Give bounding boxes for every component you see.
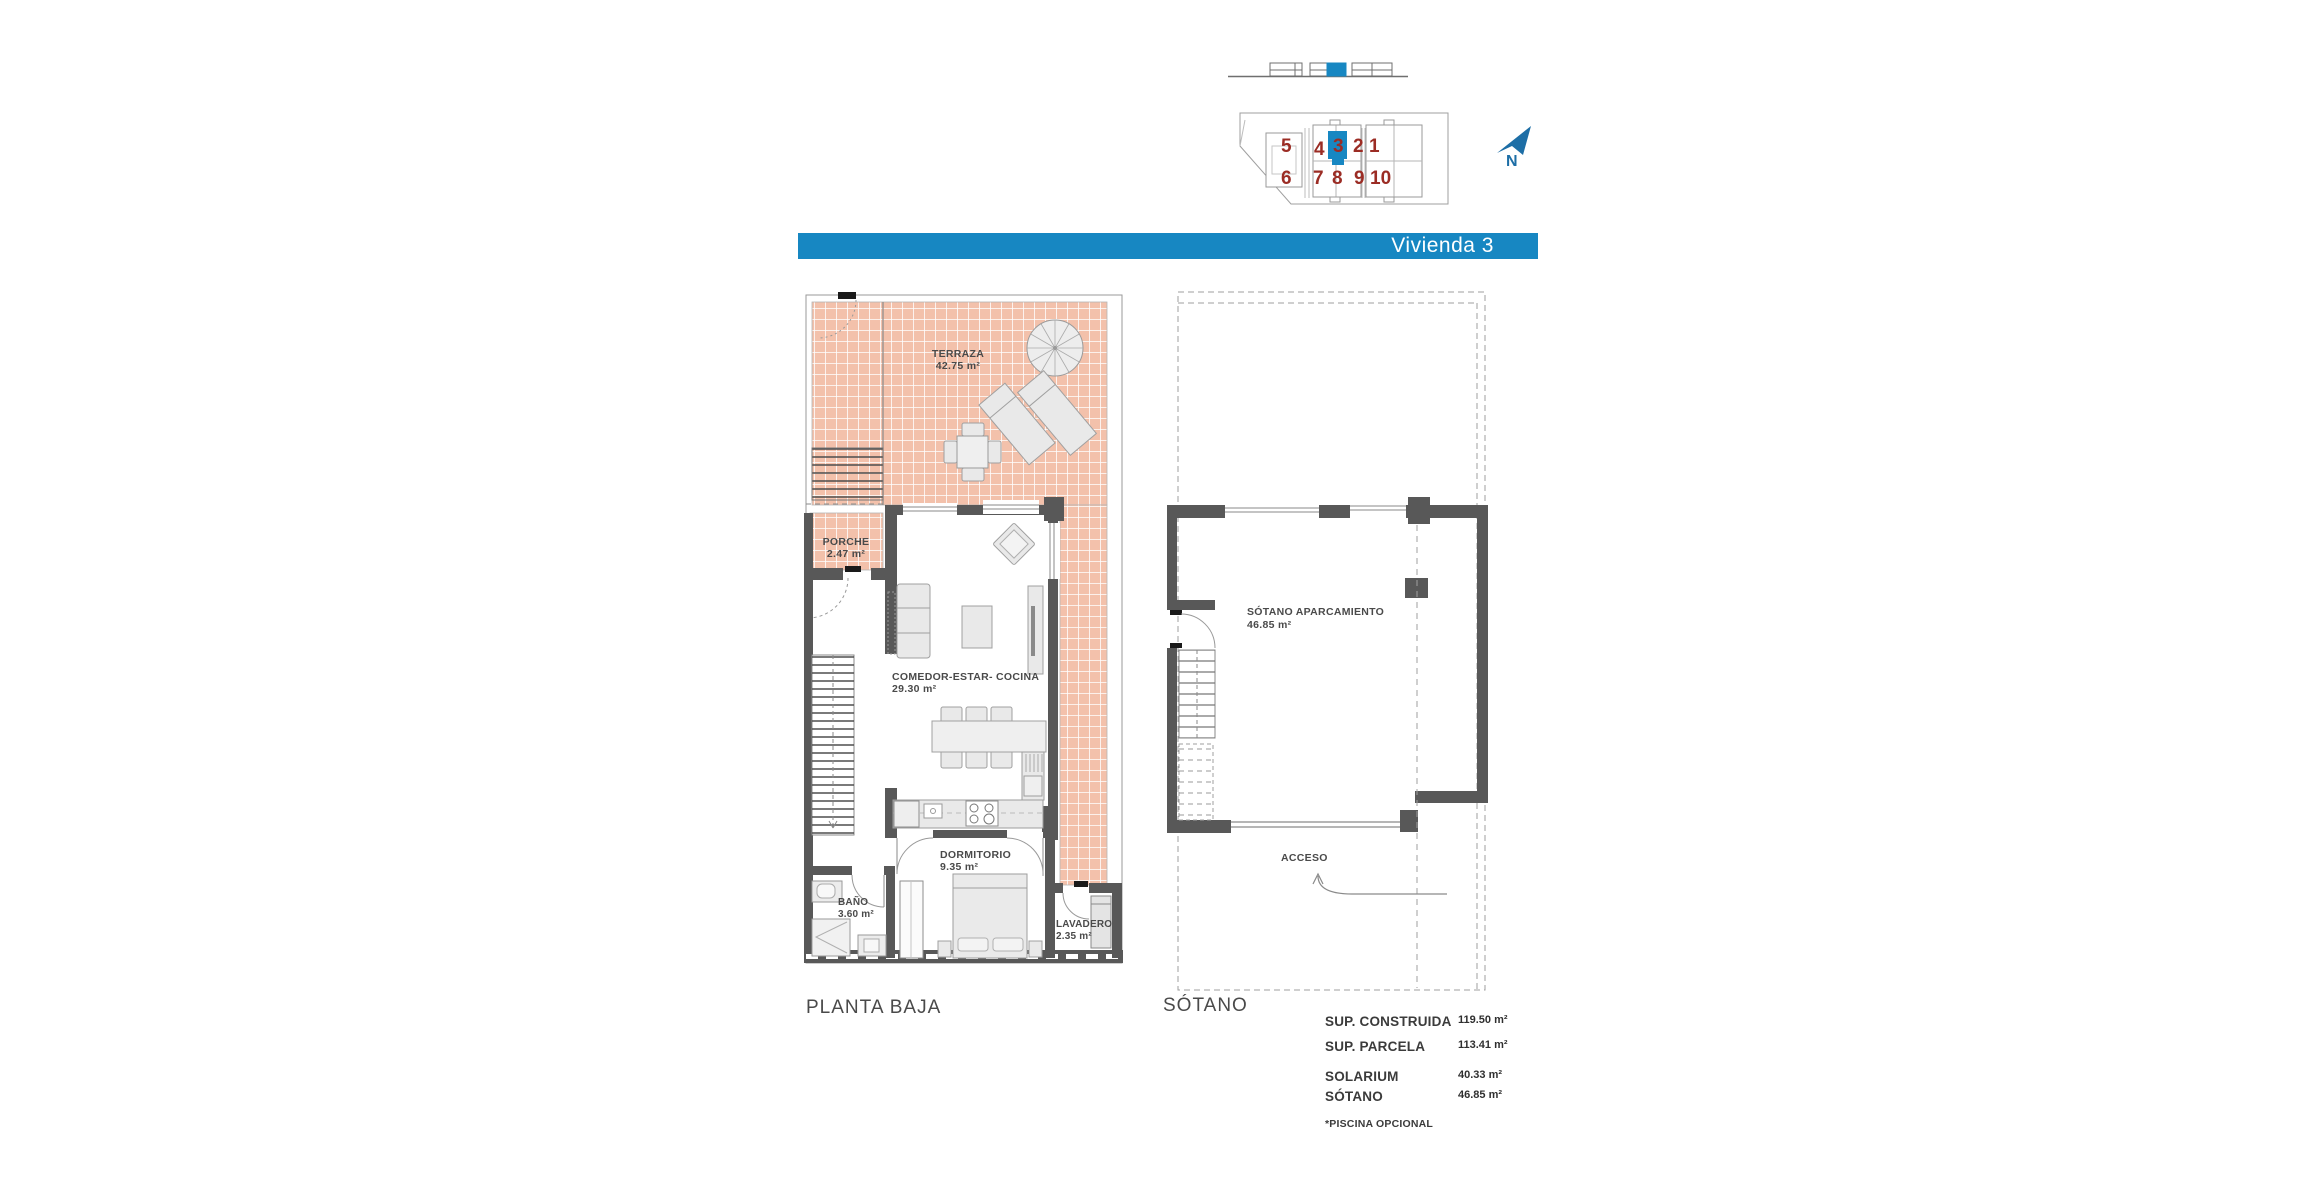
- summary-label: SÓTANO: [1325, 1089, 1383, 1104]
- site-number: 3: [1333, 136, 1344, 157]
- summary-value: 46.85 m²: [1458, 1089, 1502, 1101]
- room-area-salon: 29.30 m²: [892, 683, 937, 695]
- kitchen-sink: [924, 804, 942, 818]
- site-number: 4: [1314, 139, 1325, 160]
- summary-label: SUP. PARCELA: [1325, 1039, 1425, 1054]
- fridge: [894, 801, 919, 827]
- pillow: [958, 938, 988, 951]
- summary-value: 40.33 m²: [1458, 1069, 1502, 1081]
- site-number: 9: [1354, 168, 1365, 189]
- summary-row: SUP. CONSTRUIDA 119.50 m²: [1325, 1014, 1555, 1032]
- site-number: 5: [1281, 136, 1292, 157]
- summary-value: 119.50 m²: [1458, 1014, 1508, 1026]
- nightstand: [1029, 941, 1042, 957]
- room-area-dormitorio: 9.35 m²: [940, 861, 978, 873]
- entrance-gate: [838, 292, 856, 299]
- site-number: 7: [1313, 168, 1324, 189]
- site-number: 8: [1332, 168, 1343, 189]
- nightstand: [938, 941, 951, 957]
- tv: [1031, 606, 1035, 656]
- room-area-lavadero: 2.35 m²: [1056, 931, 1092, 942]
- summary-row: SUP. PARCELA 113.41 m²: [1325, 1039, 1555, 1057]
- site-number: 6: [1281, 168, 1292, 189]
- basement-plan: SÓTANO APARCAMIENTO 46.85 m² ACCESO: [1167, 292, 1488, 990]
- summary-label: SOLARIUM: [1325, 1069, 1399, 1084]
- exterior-stair: [806, 448, 885, 504]
- north-arrow-icon: N: [1497, 126, 1531, 170]
- access-arrow: [1313, 874, 1447, 894]
- room-area-bano: 3.60 m²: [838, 909, 874, 920]
- room-label-dormitorio: DORMITORIO: [940, 849, 1011, 861]
- room-area-porche: 2.47 m²: [827, 548, 865, 560]
- site-number: 10: [1370, 168, 1391, 189]
- highlighted-unit-elevation: [1327, 63, 1346, 76]
- vivienda-banner-label: Vivienda 3: [1391, 234, 1494, 258]
- coffee-table: [962, 606, 992, 648]
- room-label-sotano: SÓTANO APARCAMIENTO: [1247, 605, 1384, 618]
- access-label: ACCESO: [1281, 852, 1328, 864]
- pillow: [993, 938, 1023, 951]
- summary-row: SÓTANO 46.85 m²: [1325, 1089, 1555, 1107]
- spiral-stair: [1027, 320, 1083, 376]
- interior-stair: [812, 655, 854, 835]
- room-label-bano: BAÑO: [838, 895, 868, 908]
- room-area-sotano: 46.85 m²: [1247, 619, 1292, 631]
- basement-stair: [1179, 650, 1215, 820]
- vivienda-banner: Vivienda 3: [798, 233, 1538, 259]
- site-elevation-strip: [1228, 63, 1408, 77]
- summary-row: SOLARIUM 40.33 m²: [1325, 1069, 1555, 1087]
- plan-drawing: 5 4 3 2 1 6 7 8 9 10 N: [0, 0, 2304, 1185]
- bedroom-furniture: [900, 874, 1042, 958]
- ground-floor-plan: TERRAZA 42.75 m² PORCHE 2.47 m² COMEDOR-…: [804, 292, 1123, 963]
- site-number: 1: [1369, 136, 1380, 157]
- room-label-terraza: TERRAZA: [932, 348, 984, 360]
- north-label: N: [1506, 153, 1518, 170]
- ground-floor-title: PLANTA BAJA: [806, 997, 941, 1019]
- pool-note: *PISCINA OPCIONAL: [1325, 1118, 1433, 1130]
- summary-label: SUP. CONSTRUIDA: [1325, 1014, 1452, 1029]
- basement-title: SÓTANO: [1163, 995, 1248, 1017]
- room-label-lavadero: LAVADERO: [1056, 919, 1112, 930]
- room-area-terraza: 42.75 m²: [936, 360, 981, 372]
- summary-value: 113.41 m²: [1458, 1039, 1508, 1051]
- sofa: [897, 584, 930, 658]
- room-label-salon: COMEDOR-ESTAR- COCINA: [892, 671, 1039, 683]
- site-number: 2: [1353, 136, 1364, 157]
- tv-unit: [1028, 586, 1043, 674]
- room-label-porche: PORCHE: [823, 536, 870, 548]
- site-plan: 5 4 3 2 1 6 7 8 9 10: [1240, 113, 1448, 204]
- floorplan-page: 5 4 3 2 1 6 7 8 9 10 N: [0, 0, 2304, 1185]
